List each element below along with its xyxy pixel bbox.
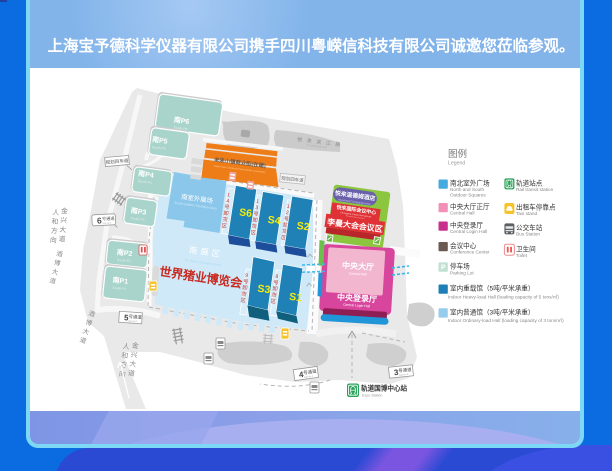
svg-text:中央大厅正厅: 中央大厅正厅 [450, 202, 490, 211]
svg-text:Rail transit station: Rail transit station [516, 187, 554, 192]
svg-text:金兴大道: 金兴大道 [58, 206, 68, 243]
svg-text:Bus Station: Bus Station [516, 232, 540, 237]
svg-text:室内重载馆（5吨/平米承重）: 室内重载馆（5吨/平米承重） [450, 284, 535, 293]
svg-text:酒博大道: 酒博大道 [79, 309, 97, 345]
svg-text:轨道站点: 轨道站点 [516, 179, 543, 188]
svg-text:S1: S1 [288, 291, 302, 304]
svg-text:Expo Station: Expo Station [362, 394, 382, 398]
svg-text:中央登录厅: 中央登录厅 [450, 221, 483, 230]
svg-text:酒博大道: 酒博大道 [49, 249, 64, 286]
svg-text:S6: S6 [238, 206, 252, 219]
svg-text:Central Hall: Central Hall [450, 211, 475, 216]
svg-text:P: P [441, 265, 446, 272]
svg-text:Indoor Ordinary-load Hall (loa: Indoor Ordinary-load Hall (loading capac… [448, 317, 564, 323]
svg-text:停车场: 停车场 [450, 262, 470, 271]
svg-text:轨道国博中心站: 轨道国博中心站 [361, 384, 408, 393]
svg-text:Gate No.6: Gate No.6 [102, 221, 112, 225]
svg-text:Conference Center: Conference Center [450, 250, 490, 255]
svg-text:Indoor Heavy-load Hall (loadin: Indoor Heavy-load Hall (loading capacity… [448, 293, 559, 299]
svg-text:南北室外广场: 南北室外广场 [450, 179, 490, 188]
svg-text:Legend: Legend [448, 161, 465, 167]
svg-text:会议中心: 会议中心 [450, 241, 477, 250]
svg-text:S2: S2 [296, 220, 310, 233]
svg-text:出租车停靠点: 出租车停靠点 [516, 203, 556, 212]
svg-text:卫生间: 卫生间 [516, 245, 536, 254]
svg-text:Toilet: Toilet [516, 253, 528, 258]
svg-text:中央大厅: 中央大厅 [342, 260, 375, 272]
svg-text:S4: S4 [267, 214, 281, 227]
svg-text:Outdoor Squares: Outdoor Squares [450, 192, 486, 197]
svg-text:公交车站: 公交车站 [516, 223, 543, 232]
svg-text:Central Login Hall: Central Login Hall [450, 229, 487, 234]
svg-text:Taxi stand: Taxi stand [516, 211, 537, 216]
svg-text:图例: 图例 [448, 148, 467, 160]
svg-text:室内普通馆（3吨/平米承重）: 室内普通馆（3吨/平米承重） [450, 307, 535, 316]
svg-text:Parking Lot: Parking Lot [450, 270, 474, 275]
svg-text:S3: S3 [257, 283, 271, 296]
